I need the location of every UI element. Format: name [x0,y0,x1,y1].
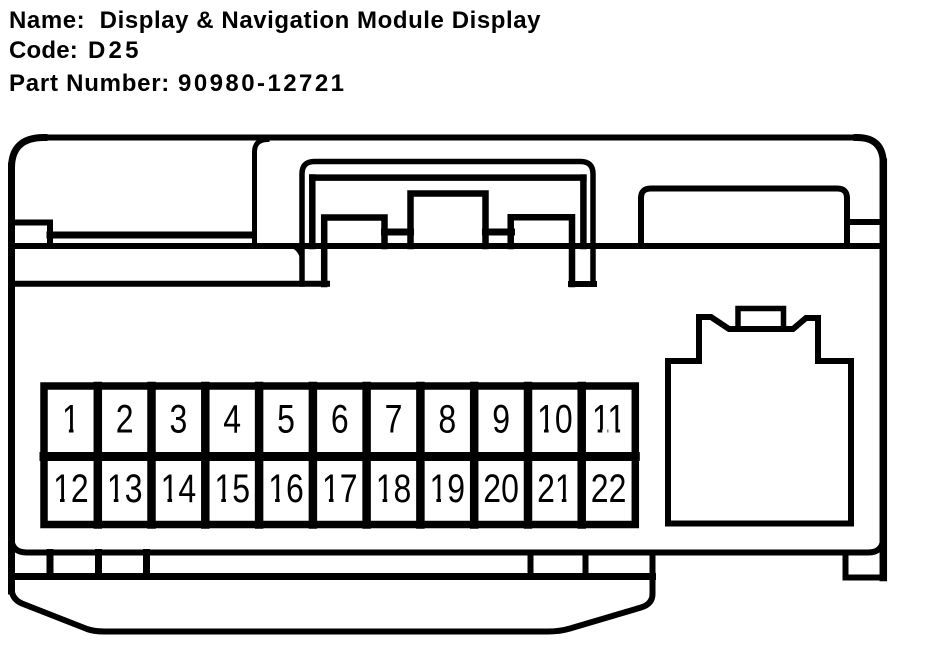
svg-text:22: 22 [591,466,627,511]
svg-text:17: 17 [322,466,358,511]
svg-text:19: 19 [429,466,465,511]
svg-text:10: 10 [537,396,573,441]
svg-text:1: 1 [62,396,80,441]
svg-text:14: 14 [161,466,197,511]
svg-text:6: 6 [331,396,349,441]
svg-text:2: 2 [116,396,134,441]
svg-text:5: 5 [277,396,295,441]
svg-text:7: 7 [385,396,403,441]
svg-text:8: 8 [438,396,456,441]
svg-text:16: 16 [268,466,304,511]
svg-text:15: 15 [214,466,250,511]
svg-text:18: 18 [376,466,412,511]
svg-text:11: 11 [592,396,625,441]
svg-text:9: 9 [492,396,510,441]
svg-text:12: 12 [53,466,89,511]
svg-text:3: 3 [169,396,187,441]
svg-text:4: 4 [223,396,241,441]
svg-text:21: 21 [537,466,573,511]
svg-text:20: 20 [483,466,519,511]
svg-text:13: 13 [107,466,143,511]
